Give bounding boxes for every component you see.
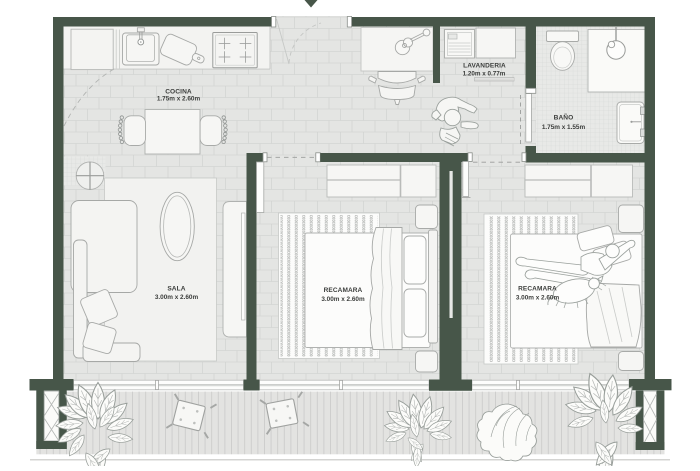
svg-text:1.75m x 1.55m: 1.75m x 1.55m bbox=[542, 124, 586, 131]
svg-text:COCINA: COCINA bbox=[165, 89, 192, 96]
svg-text:BAÑO: BAÑO bbox=[554, 113, 574, 122]
svg-text:RECAMARA: RECAMARA bbox=[324, 287, 363, 294]
svg-text:SALA: SALA bbox=[167, 286, 185, 293]
svg-text:3.00m x 2.60m: 3.00m x 2.60m bbox=[155, 294, 199, 301]
svg-text:3.00m x 2.60m: 3.00m x 2.60m bbox=[516, 295, 560, 302]
svg-text:LAVANDERIA: LAVANDERIA bbox=[463, 62, 506, 69]
svg-text:1.20m x 0.77m: 1.20m x 0.77m bbox=[463, 71, 506, 78]
svg-text:3.00m x 2.60m: 3.00m x 2.60m bbox=[321, 296, 365, 303]
svg-text:1.75m x 2.60m: 1.75m x 2.60m bbox=[157, 96, 201, 103]
svg-text:RECAMARA: RECAMARA bbox=[518, 286, 557, 293]
